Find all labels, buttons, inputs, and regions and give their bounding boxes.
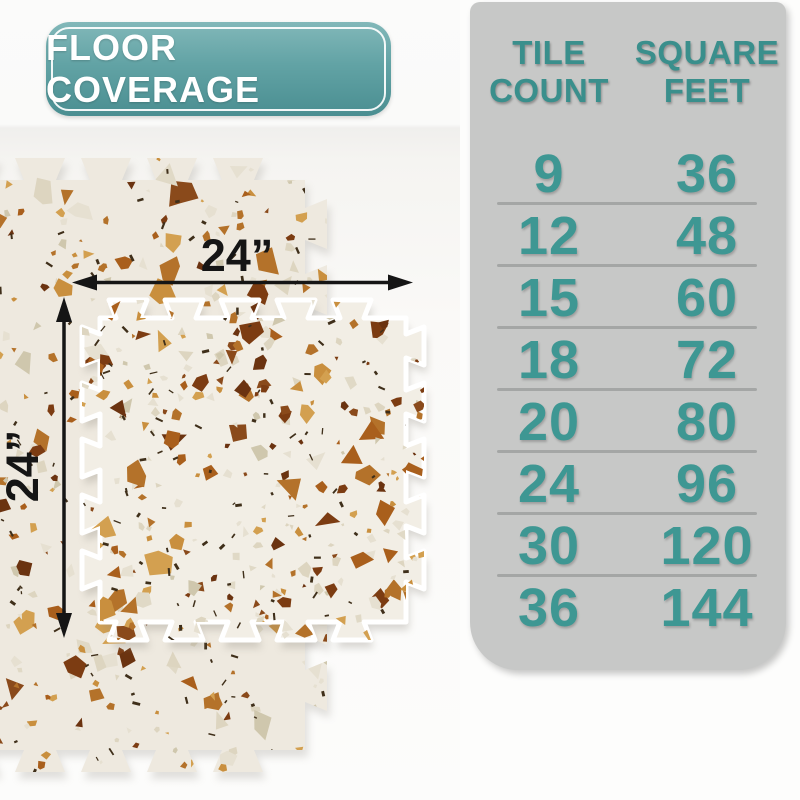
- tile-count-value: 36: [470, 577, 628, 639]
- square-feet-header: SQUARE FEET: [628, 34, 786, 143]
- table-row: 15 60: [470, 267, 786, 329]
- tile-count-value: 9: [470, 143, 628, 205]
- square-feet-value: 36: [628, 143, 786, 205]
- square-feet-value: 144: [628, 577, 786, 639]
- square-feet-value: 120: [628, 515, 786, 577]
- tile-count-value: 18: [470, 329, 628, 391]
- tile-photo-scene: 24” 24” FLOOR COVERAGE: [0, 0, 460, 800]
- square-feet-value: 60: [628, 267, 786, 329]
- table-body: 9 36 12 48 15 60 18 72 20 80 24 96: [470, 143, 786, 639]
- table-row: 36 144: [470, 577, 786, 639]
- tile-count-header: TILE COUNT: [470, 34, 628, 143]
- square-feet-value: 72: [628, 329, 786, 391]
- tile-count-value: 15: [470, 267, 628, 329]
- table-row: 12 48: [470, 205, 786, 267]
- table-row: 9 36: [470, 143, 786, 205]
- table-row: 30 120: [470, 515, 786, 577]
- product-infographic: 24” 24” FLOOR COVERAGE TILE COUNT SQUARE…: [0, 0, 800, 800]
- coverage-table-panel: TILE COUNT SQUARE FEET 9 36 12 48 15 60 …: [470, 2, 786, 670]
- tile-count-value: 12: [470, 205, 628, 267]
- front-tile: [79, 296, 427, 651]
- table-row: 24 96: [470, 453, 786, 515]
- tile-count-value: 30: [470, 515, 628, 577]
- height-label: 24”: [0, 430, 48, 503]
- badge-label: FLOOR COVERAGE: [46, 27, 391, 111]
- width-label: 24”: [201, 230, 274, 281]
- arrow-right-icon: [388, 275, 413, 291]
- tile-count-value: 20: [470, 391, 628, 453]
- square-feet-value: 80: [628, 391, 786, 453]
- table-header: TILE COUNT SQUARE FEET: [470, 2, 786, 143]
- table-row: 20 80: [470, 391, 786, 453]
- tiles-diagram: 24” 24”: [0, 0, 460, 800]
- tile-count-value: 24: [470, 453, 628, 515]
- square-feet-value: 96: [628, 453, 786, 515]
- floor-coverage-badge: FLOOR COVERAGE: [46, 22, 391, 116]
- table-row: 18 72: [470, 329, 786, 391]
- square-feet-value: 48: [628, 205, 786, 267]
